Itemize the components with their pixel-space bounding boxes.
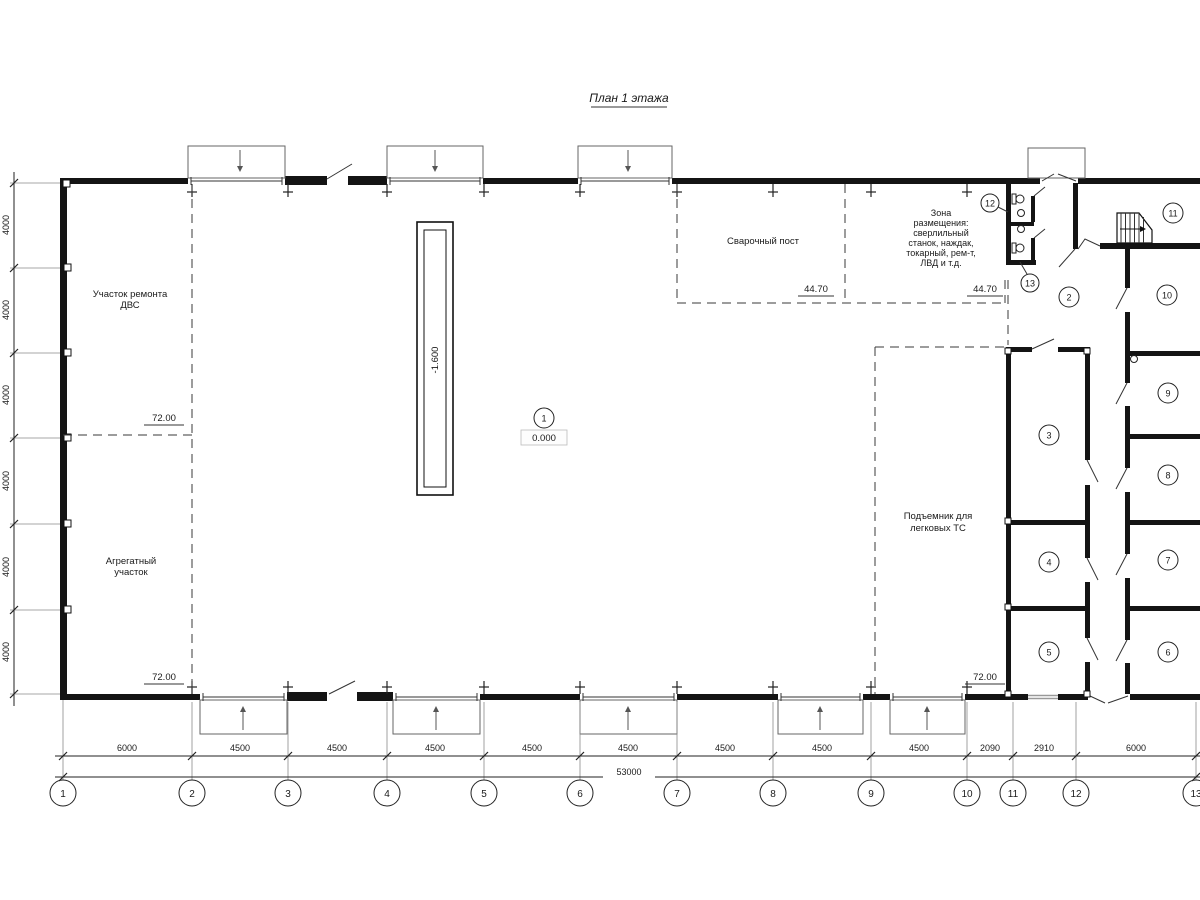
dim-bottom-3: 4500 — [425, 743, 445, 753]
grid-bubble-8: 8 — [760, 780, 786, 806]
room-marker-8: 8 — [1158, 465, 1178, 485]
svg-text:13: 13 — [1025, 279, 1035, 289]
dim-bottom-2: 4500 — [327, 743, 347, 753]
svg-text:2: 2 — [1066, 293, 1071, 303]
room-marker-12: 12 — [981, 194, 1008, 212]
dim-left-5: 4000 — [1, 642, 11, 662]
door-leaf — [1116, 468, 1127, 489]
door-leaf — [1108, 696, 1128, 703]
svg-text:12: 12 — [985, 199, 995, 209]
dim-bottom-5: 4500 — [618, 743, 638, 753]
dim-left-4: 4000 — [1, 557, 11, 577]
svg-text:5: 5 — [1046, 648, 1051, 658]
elevation-welding-right: 44.70 — [973, 284, 997, 295]
dim-bottom-1: 4500 — [230, 743, 250, 753]
window — [1028, 696, 1058, 699]
door-leaf — [1034, 229, 1045, 238]
toilet-block — [1006, 183, 1045, 265]
svg-text:1: 1 — [60, 789, 66, 800]
dim-bottom-6: 4500 — [715, 743, 735, 753]
room-marker-2: 2 — [1059, 287, 1079, 307]
svg-text:12: 12 — [1070, 789, 1082, 800]
elevation-welding-left: 44.70 — [804, 284, 828, 295]
dim-bottom-7: 4500 — [812, 743, 832, 753]
door-leaf — [1116, 554, 1127, 575]
sink-fixture — [1131, 356, 1138, 363]
door-leaf — [1078, 239, 1100, 249]
elevation-marks: 72.00 72.00 72.00 44.70 44.70 0.000 — [144, 284, 1005, 684]
elevation-hall: 0.000 — [532, 433, 556, 444]
area-labels: Участок ремонта ДВС Агрегатный участок С… — [93, 208, 976, 578]
room-marker-13: 13 — [1020, 262, 1039, 292]
drawing-title: План 1 этажа — [589, 91, 669, 107]
room-marker-9: 9 — [1158, 383, 1178, 403]
svg-text:5: 5 — [481, 789, 487, 800]
door-leaf — [1116, 640, 1127, 661]
floor-plan-sheet: План 1 этажа — [0, 0, 1200, 900]
title-text: План 1 этажа — [589, 91, 669, 105]
svg-text:8: 8 — [1165, 471, 1170, 481]
elevation-right-bottom: 72.00 — [973, 672, 997, 683]
dim-bottom-4: 4500 — [522, 743, 542, 753]
grid-bubble-6: 6 — [567, 780, 593, 806]
dim-left-3: 4000 — [1, 471, 11, 491]
door-leaf — [1090, 696, 1105, 703]
grid-bubble-12: 12 — [1063, 780, 1089, 806]
equipment-zone-line6: ЛВД и т.д. — [920, 258, 961, 268]
svg-text:1: 1 — [541, 414, 546, 424]
dim-left-2: 4000 — [1, 385, 11, 405]
svg-text:6: 6 — [577, 789, 583, 800]
svg-text:6: 6 — [1165, 648, 1170, 658]
grid-bubble-1: 1 — [50, 780, 76, 806]
outer-walls — [60, 176, 1200, 701]
door-leaf — [1032, 339, 1054, 349]
door-leaf — [1116, 383, 1127, 404]
room-marker-1: 1 — [534, 408, 554, 428]
entry-porch — [1028, 148, 1085, 178]
svg-text:10: 10 — [1162, 291, 1172, 301]
aggregate-label-line1: Агрегатный — [106, 556, 156, 567]
interior-walls — [1005, 183, 1200, 697]
gate-apron — [578, 146, 672, 178]
dim-bottom-9: 2090 — [980, 743, 1000, 753]
dim-bottom-0: 6000 — [117, 743, 137, 753]
door-leaf — [1116, 288, 1127, 309]
svg-text:10: 10 — [961, 789, 973, 800]
svg-text:11: 11 — [1008, 789, 1019, 800]
door-leaf — [1087, 638, 1098, 660]
svg-text:9: 9 — [1165, 389, 1170, 399]
door-leaf — [329, 681, 355, 694]
svg-text:3: 3 — [1046, 431, 1051, 441]
svg-text:13: 13 — [1190, 789, 1200, 800]
stairs — [1117, 213, 1152, 243]
left-dimension-chain: 4000 4000 4000 4000 4000 4000 — [1, 172, 60, 706]
car-lift-label-line1: Подъемник для — [904, 511, 973, 522]
room-marker-3: 3 — [1039, 425, 1059, 445]
equipment-zone-line4: станок, наждак, — [908, 238, 973, 248]
svg-text:7: 7 — [1165, 556, 1170, 566]
dim-left-1: 4000 — [1, 300, 11, 320]
room-marker-10: 10 — [1157, 285, 1177, 305]
bottom-gates — [200, 681, 1128, 734]
grid-bubble-10: 10 — [954, 780, 980, 806]
equipment-zone-line2: размещения: — [914, 218, 969, 228]
inspection-pit: -1.600 — [417, 222, 453, 495]
door-leaf — [1087, 460, 1098, 482]
room-marker-7: 7 — [1158, 550, 1178, 570]
grid-bubble-3: 3 — [275, 780, 301, 806]
room-marker-11: 11 — [1163, 203, 1183, 223]
pit-depth-label: -1.600 — [430, 347, 441, 374]
svg-text:2: 2 — [189, 789, 195, 800]
car-lift-label-line2: легковых ТС — [910, 523, 966, 534]
door-leaf — [1059, 249, 1075, 267]
elevation-left-top: 72.00 — [152, 413, 176, 424]
svg-text:9: 9 — [868, 789, 874, 800]
engine-repair-label-line2: ДВС — [120, 300, 139, 311]
door-leaf — [1087, 558, 1098, 580]
dim-bottom-10: 2910 — [1034, 743, 1054, 753]
svg-text:8: 8 — [770, 789, 776, 800]
dim-bottom-11: 6000 — [1126, 743, 1146, 753]
grid-bubble-13: 13 — [1183, 780, 1200, 806]
dim-left-0: 4000 — [1, 215, 11, 235]
dim-total: 53000 — [616, 767, 641, 777]
grid-axis-bubbles: 1 2 3 4 5 6 7 8 9 10 11 12 13 — [50, 780, 1200, 806]
welding-post-label: Сварочный пост — [727, 236, 800, 247]
room-marker-5: 5 — [1039, 642, 1059, 662]
grid-bubble-2: 2 — [179, 780, 205, 806]
svg-text:4: 4 — [384, 789, 390, 800]
equipment-zone-line5: токарный, рем-т, — [906, 248, 975, 258]
grid-bubble-7: 7 — [664, 780, 690, 806]
grid-bubble-5: 5 — [471, 780, 497, 806]
equipment-zone-line3: сверлильный — [913, 228, 969, 238]
equipment-zone-line1: Зона — [931, 208, 951, 218]
svg-text:7: 7 — [674, 789, 680, 800]
dim-bottom-8: 4500 — [909, 743, 929, 753]
room-marker-6: 6 — [1158, 642, 1178, 662]
svg-text:3: 3 — [285, 789, 291, 800]
gate-apron — [188, 146, 285, 178]
aggregate-label-line2: участок — [114, 567, 148, 578]
svg-text:4: 4 — [1046, 558, 1051, 568]
elevation-left-bottom: 72.00 — [152, 672, 176, 683]
floor-plan-canvas: План 1 этажа — [0, 0, 1200, 900]
grid-bubble-11: 11 — [1000, 780, 1026, 806]
engine-repair-label-line1: Участок ремонта — [93, 289, 168, 300]
wall-junction-ticks — [63, 180, 972, 694]
grid-bubble-4: 4 — [374, 780, 400, 806]
door-leaf — [1034, 187, 1045, 196]
grid-bubble-9: 9 — [858, 780, 884, 806]
room-marker-4: 4 — [1039, 552, 1059, 572]
svg-text:11: 11 — [1168, 209, 1177, 219]
